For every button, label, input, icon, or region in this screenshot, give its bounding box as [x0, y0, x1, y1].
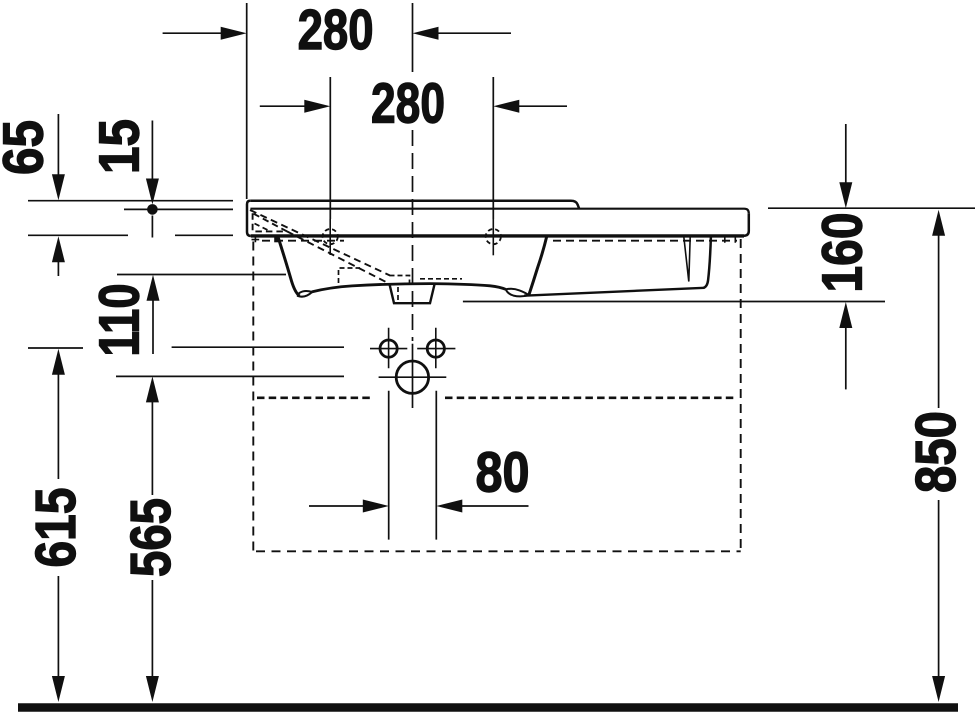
svg-text:565: 565 — [119, 498, 183, 577]
svg-text:160: 160 — [811, 213, 875, 293]
svg-text:280: 280 — [298, 0, 374, 62]
svg-text:615: 615 — [24, 488, 88, 568]
svg-text:110: 110 — [88, 284, 152, 357]
svg-text:850: 850 — [904, 411, 968, 493]
svg-text:80: 80 — [476, 441, 530, 505]
svg-text:65: 65 — [0, 120, 56, 175]
svg-text:15: 15 — [88, 119, 152, 174]
svg-text:280: 280 — [371, 72, 445, 136]
